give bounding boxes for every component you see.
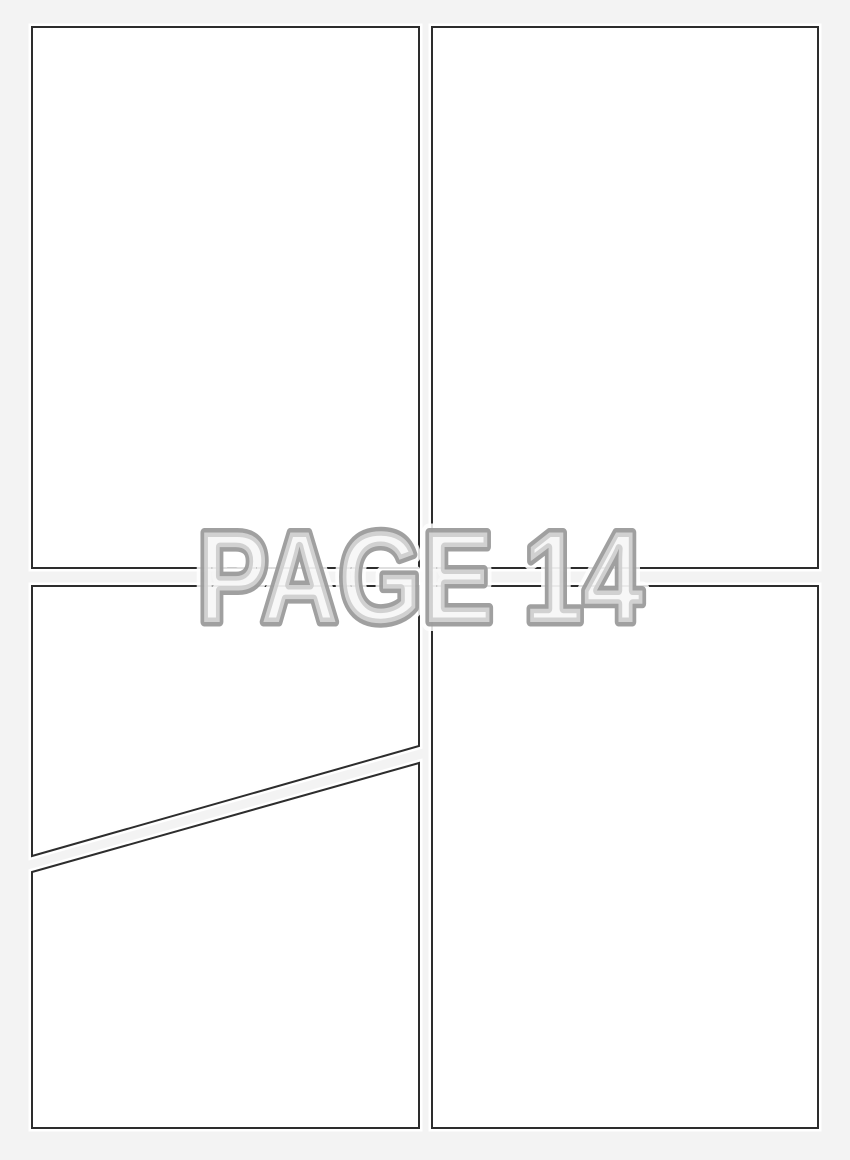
- page-watermark: PAGE 14 PAGE 14 PAGE 14: [197, 504, 643, 650]
- page-canvas: PAGE 14 PAGE 14 PAGE 14: [0, 0, 850, 1160]
- panel-bottom-right: [432, 586, 818, 1128]
- panel-top-right: [432, 27, 818, 568]
- watermark-label: PAGE 14: [197, 504, 643, 650]
- comic-page-template: PAGE 14 PAGE 14 PAGE 14: [0, 0, 850, 1160]
- panel-top-left: [32, 27, 419, 568]
